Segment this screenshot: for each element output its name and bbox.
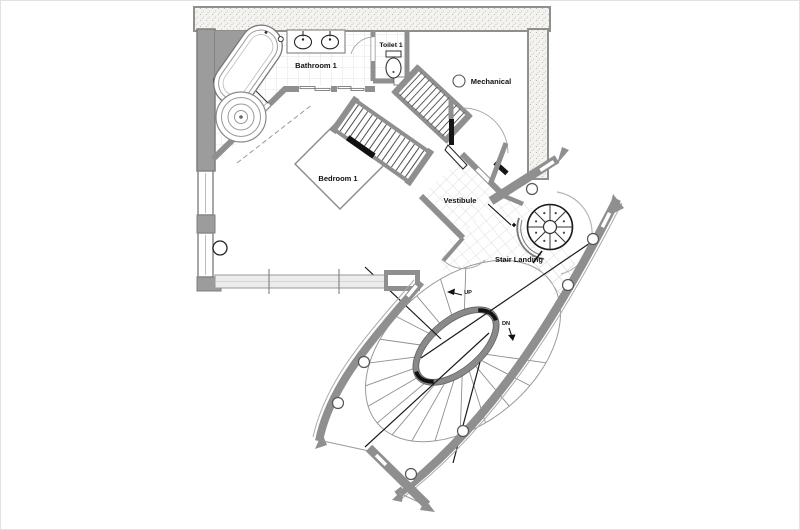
column — [563, 280, 574, 291]
mechanical-equipment-icon — [453, 75, 465, 87]
north-wall — [194, 7, 550, 31]
shower-drain-icon — [239, 115, 243, 119]
stair-landing-label: Stair Landing — [495, 255, 543, 264]
column — [458, 426, 469, 437]
spiral-stair-newel — [544, 221, 557, 234]
down-label: DN — [502, 321, 510, 327]
toilet-label: Toilet 1 — [379, 42, 403, 49]
up-label: UP — [464, 290, 472, 296]
column — [333, 398, 344, 409]
column — [213, 241, 227, 255]
floor-edge-line — [323, 441, 369, 451]
floor-plan-drawing: UP DN — [1, 1, 800, 530]
wall-post — [449, 119, 454, 145]
shower — [216, 92, 266, 142]
west-wall-pier — [197, 215, 215, 233]
east-wall — [528, 29, 548, 179]
sliding-door — [337, 86, 365, 93]
column — [527, 184, 538, 195]
floor-plan-page: UP DN — [0, 0, 800, 530]
mechanical-sw-wall — [490, 143, 506, 185]
bedroom-label: Bedroom 1 — [318, 174, 357, 183]
column — [359, 357, 370, 368]
vestibule-label: Vestibule — [444, 196, 477, 205]
landing-blade-tip — [557, 147, 569, 164]
mechanical-label: Mechanical — [471, 77, 511, 86]
column — [588, 234, 599, 245]
west-wall-upper — [197, 29, 215, 171]
bathroom-label: Bathroom 1 — [295, 61, 337, 70]
column — [406, 469, 417, 480]
sliding-door — [299, 86, 331, 93]
toilet-fixture — [386, 51, 401, 78]
